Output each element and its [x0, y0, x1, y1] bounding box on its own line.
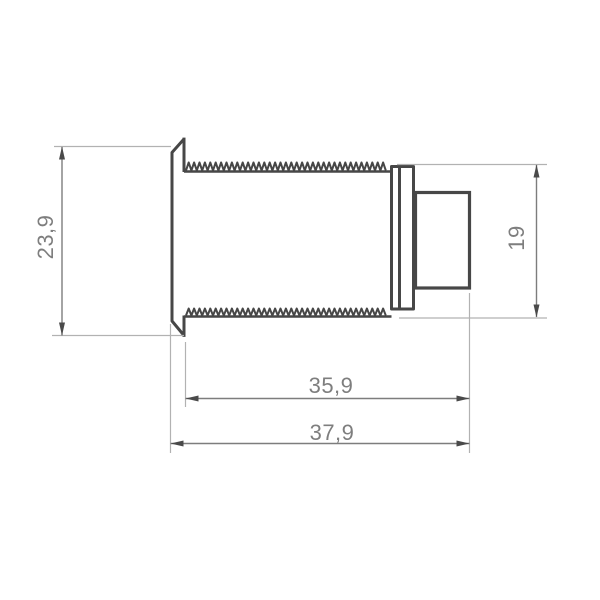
rear-spigot — [416, 193, 470, 289]
thread-bottom-crests — [186, 309, 386, 316]
arrow-down-body-height — [534, 305, 540, 318]
arrow-left-thread-length — [186, 396, 199, 402]
dim-label-body-height: 19 — [504, 225, 529, 250]
dim-label-overall-length: 37,9 — [310, 420, 355, 445]
arrow-up-flange-height — [59, 147, 65, 160]
technical-drawing-canvas: 23,9 19 35,9 37,9 — [0, 0, 600, 600]
flange-outline — [172, 139, 184, 336]
arrow-down-flange-height — [59, 323, 65, 336]
arrow-left-overall-length — [171, 441, 184, 447]
collar-ring — [392, 167, 414, 310]
dim-label-thread-length: 35,9 — [309, 373, 354, 398]
arrow-right-overall-length — [457, 441, 470, 447]
arrow-up-body-height — [534, 165, 540, 178]
arrow-right-thread-length — [457, 396, 470, 402]
thread-top-crests — [186, 163, 386, 171]
dim-label-flange-height: 23,9 — [33, 215, 58, 260]
technical-drawing: 23,9 19 35,9 37,9 — [0, 0, 600, 600]
